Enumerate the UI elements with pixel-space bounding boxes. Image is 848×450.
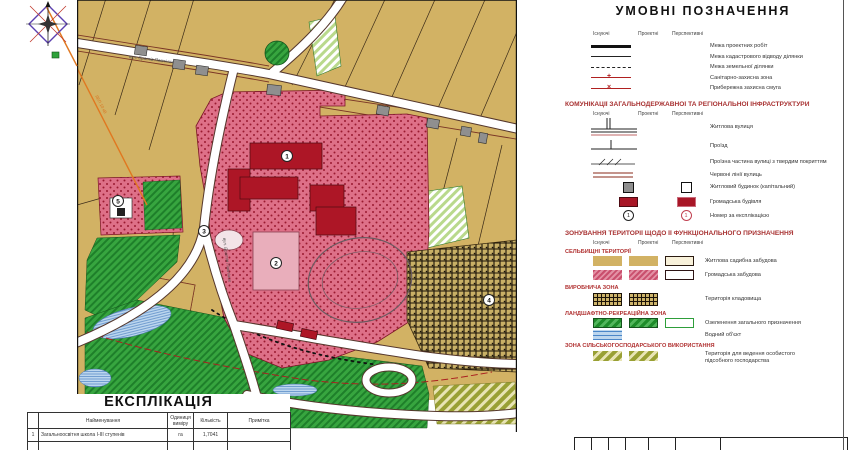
legend-item: Водний об'єкт [563, 330, 843, 340]
svg-text:1: 1 [285, 153, 289, 160]
row-name: Загальноосвітня школа I-III ступенів [39, 429, 168, 442]
legend-item: Проїзна частина вулиці з твердим покритт… [563, 155, 843, 170]
legend-item: Межа проектних робіт [563, 41, 843, 52]
legend-item: Житловий будинок (капітальний) [563, 180, 843, 195]
driveway-symbol [591, 140, 637, 153]
subsidiary-projected-swatch [629, 351, 658, 361]
water-swatch [593, 330, 622, 340]
public-building-projected-symbol [677, 197, 696, 207]
pink-parcel-green [143, 180, 182, 230]
marker-5: 5 [113, 196, 124, 207]
col-unit: Одиниця виміру [168, 413, 194, 429]
title-block-cell [721, 438, 847, 450]
row-qty: 1,7041 [194, 429, 228, 442]
cadastral-boundary-symbol [591, 56, 631, 57]
red-lines-symbol [591, 171, 637, 179]
legend-item: Озеленення загального призначення [563, 317, 843, 331]
legend-panel: УМОВНІ ПОЗНАЧЕННЯ Існуючі Проектні Персп… [563, 2, 843, 371]
legend-item: 1 1 Номер за експлікацією [563, 209, 843, 223]
residential-existing-swatch [593, 256, 622, 266]
header-projected: Проектні [638, 31, 672, 37]
number-existing-symbol: 1 [623, 210, 634, 221]
svg-text:5: 5 [116, 198, 120, 205]
sanitary-zone-symbol: + [591, 74, 631, 81]
table-row: 1 Загальноосвітня школа I-III ступенів г… [28, 429, 291, 442]
legend-title: УМОВНІ ПОЗНАЧЕННЯ [563, 4, 843, 18]
legend-item: × Прибережна захисна смуга [563, 83, 843, 94]
zoning-section-title: ЗОНУВАННЯ ТЕРИТОРІЇ ЩОДО ЇЇ ФУНКЦІОНАЛЬН… [565, 230, 843, 237]
col-qty: Кількість [194, 413, 228, 429]
svg-text:3: 3 [202, 228, 206, 235]
legend-column-headers: Існуючі Проектні Перспективні [563, 31, 843, 37]
legend-item: Територія кладовища [563, 291, 843, 308]
legend-item: Територія для ведення особистого підсобн… [563, 349, 843, 371]
legend-item: Житлова садибна забудова [563, 255, 843, 269]
pond [79, 369, 111, 387]
public-perspective-swatch [665, 270, 694, 280]
table-row-partial [28, 442, 291, 450]
hard-surface-symbol [591, 157, 637, 167]
col-name: Найменування [39, 413, 168, 429]
title-block [574, 437, 848, 450]
explication: ЕКСПЛІКАЦІЯ Найменування Одиниця виміру … [27, 394, 290, 450]
legend-column-headers: Існуючі Проектні Перспективні [563, 240, 843, 246]
header-perspective: Перспективні [672, 31, 732, 37]
plan-sheet: ЛЕП 10 кВ [0, 0, 848, 450]
residential-projected-swatch [629, 256, 658, 266]
title-block-cell [575, 438, 592, 450]
explication-table: Найменування Одиниця виміру Кількість Пр… [27, 412, 291, 450]
house-existing-symbol [623, 182, 634, 193]
marker-3: 3 [199, 226, 210, 237]
subsidiary-existing-swatch [593, 351, 622, 361]
public-projected-swatch [629, 270, 658, 280]
marker-1: 1 [282, 151, 293, 162]
col-note: Примітка [228, 413, 291, 429]
sheet-border [843, 0, 844, 450]
project-boundary-symbol [591, 45, 631, 48]
legend-item: Житлова вулиця [563, 117, 843, 138]
row-num: 1 [28, 429, 39, 442]
communications-section-title: КОМУНІКАЦІЇ ЗАГАЛЬНОДЕРЖАВНОЇ ТА РЕГІОНА… [565, 101, 843, 108]
title-block-cell [676, 438, 721, 450]
marker-4: 4 [484, 295, 495, 306]
col-num [28, 413, 39, 429]
riparian-strip-symbol: × [591, 85, 631, 92]
title-block-cell [592, 438, 609, 450]
cemetery-existing-swatch [593, 293, 622, 306]
legend-item: Проїзд [563, 138, 843, 155]
greenery-projected-swatch [629, 318, 658, 328]
public-existing-swatch [593, 270, 622, 280]
legend-item: + Санітарно-захисна зона [563, 73, 843, 84]
compass-rose [22, 0, 78, 110]
legend-item: Громадська будівля [563, 195, 843, 209]
number-projected-symbol: 1 [681, 210, 692, 221]
residential-street-symbol [591, 118, 637, 136]
legend-item: Червоні лінії вулиць [563, 170, 843, 180]
greenery-existing-swatch [593, 318, 622, 328]
row-unit: га [168, 429, 194, 442]
legend-item: Громадська забудова [563, 268, 843, 282]
row-note [228, 429, 291, 442]
svg-text:2: 2 [274, 260, 278, 267]
title-block-cell [649, 438, 676, 450]
legend-item: Межа земельної ділянки [563, 62, 843, 73]
legend-item: Межа кадастрового відводу ділянки [563, 52, 843, 63]
title-block-cell [626, 438, 649, 450]
public-building-existing-symbol [619, 197, 638, 207]
header-existing: Існуючі [593, 31, 638, 37]
cemetery-projected-swatch [629, 293, 658, 306]
roundabout-island [265, 41, 289, 65]
greenery-perspective-swatch [665, 318, 694, 328]
house-projected-symbol [681, 182, 692, 193]
parcel-boundary-symbol [591, 67, 631, 68]
map-canvas: ЛЕП 10 кВ [77, 0, 517, 436]
title-block-cell [609, 438, 626, 450]
explication-title: ЕКСПЛІКАЦІЯ [27, 394, 290, 410]
marker-2: 2 [271, 258, 282, 269]
svg-text:4: 4 [487, 297, 491, 304]
residential-perspective-swatch [665, 256, 694, 266]
